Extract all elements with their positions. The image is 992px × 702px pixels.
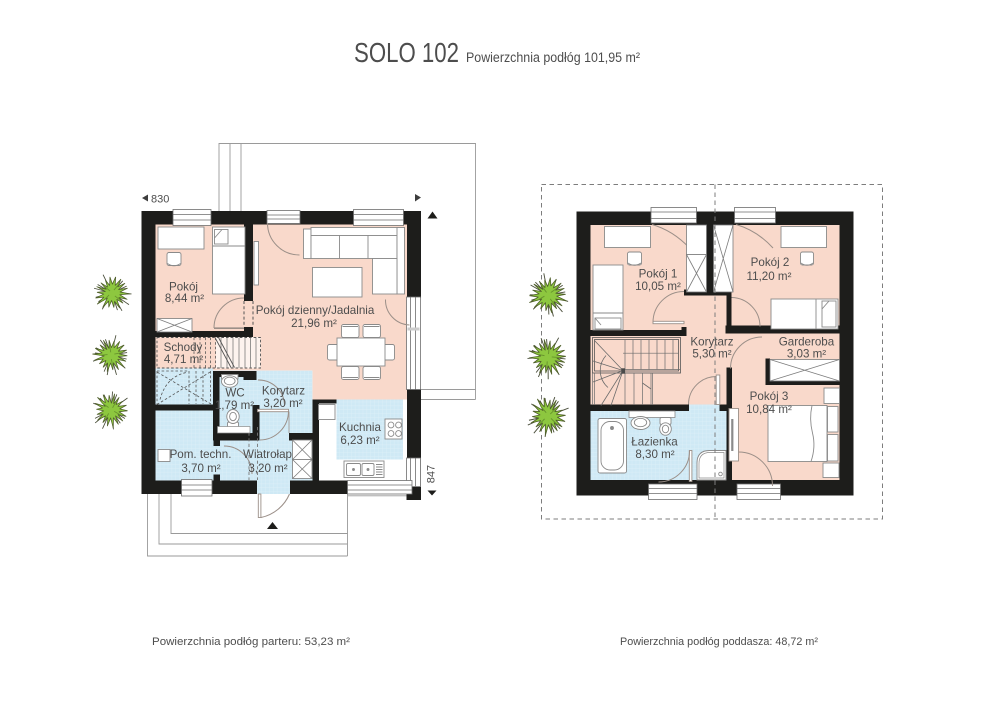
svg-text:SOLO 102: SOLO 102 <box>354 37 459 68</box>
svg-text:Kuchnia: Kuchnia <box>339 421 381 434</box>
svg-text:Korytarz: Korytarz <box>262 385 305 398</box>
svg-text:Pokój dzienny/Jadalnia: Pokój dzienny/Jadalnia <box>256 304 375 317</box>
svg-text:Wiatrołap: Wiatrołap <box>243 448 292 461</box>
svg-text:Pokój 2: Pokój 2 <box>751 256 790 269</box>
svg-text:Pokój 3: Pokój 3 <box>750 390 789 403</box>
svg-text:8,30 m²: 8,30 m² <box>635 448 674 461</box>
svg-text:Łazienka: Łazienka <box>631 436 678 449</box>
svg-text:4,71 m²: 4,71 m² <box>164 353 203 366</box>
svg-text:11,20 m²: 11,20 m² <box>747 270 792 283</box>
svg-text:Powierzchnia podłóg parteru: 5: Powierzchnia podłóg parteru: 53,23 m² <box>152 636 350 648</box>
svg-text:Pokój 1: Pokój 1 <box>639 268 678 281</box>
svg-text:10,05 m²: 10,05 m² <box>635 280 681 293</box>
svg-text:5,30 m²: 5,30 m² <box>692 348 731 361</box>
svg-text:10,84 m²: 10,84 m² <box>746 403 792 416</box>
svg-text:3,20 m²: 3,20 m² <box>263 397 302 410</box>
svg-text:3,70 m²: 3,70 m² <box>181 462 220 475</box>
svg-text:Powierzchnia podłóg 101,95 m²: Powierzchnia podłóg 101,95 m² <box>466 50 640 65</box>
svg-text:830: 830 <box>151 194 169 206</box>
svg-text:21,96 m²: 21,96 m² <box>291 317 337 330</box>
svg-text:3,03 m²: 3,03 m² <box>787 348 826 361</box>
svg-text:Pom. techn.: Pom. techn. <box>170 448 232 461</box>
svg-text:847: 847 <box>426 465 438 483</box>
svg-text:6,23 m²: 6,23 m² <box>340 434 379 447</box>
svg-text:3,20 m²: 3,20 m² <box>248 462 287 475</box>
svg-text:WC: WC <box>225 387 244 400</box>
svg-text:1,79 m²: 1,79 m² <box>215 399 254 412</box>
svg-text:8,44 m²: 8,44 m² <box>165 292 204 305</box>
svg-text:Powierzchnia podłóg poddasza:: Powierzchnia podłóg poddasza: 48,72 m² <box>620 636 818 648</box>
